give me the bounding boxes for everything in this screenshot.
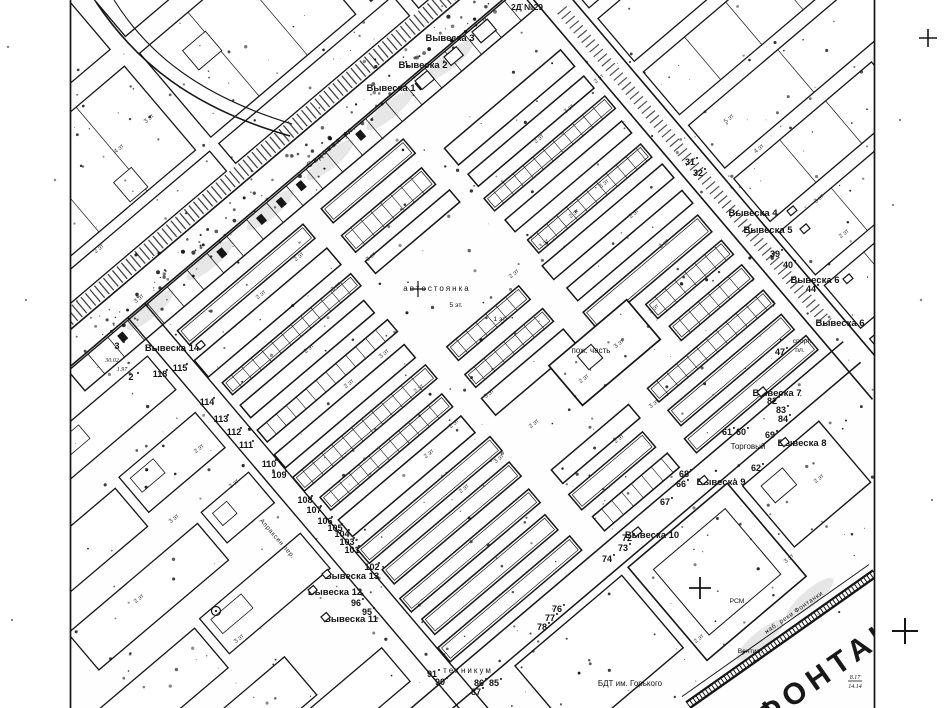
sign-label-3: Вывеска 3 — [425, 33, 474, 44]
area-label-parking: автостоянка — [403, 284, 470, 293]
cadastral-map-scan: Вывеска 1Вывеска 2Вывеска 3Вывеска 4Выве… — [0, 0, 944, 708]
benchmark-bottom: 14.14 — [848, 683, 862, 690]
survey-point-96: 96 — [351, 598, 361, 608]
survey-point-107: 107 — [306, 505, 321, 515]
survey-point-84: 84 — [778, 414, 788, 424]
survey-point-114: 114 — [200, 397, 215, 407]
survey-point-dot — [320, 505, 322, 507]
measure-3002: 30.02 — [104, 358, 119, 364]
survey-point-111: 111 — [239, 440, 253, 450]
survey-point-91: 91 — [427, 669, 437, 679]
survey-point-dot — [373, 607, 375, 609]
survey-point-dot — [671, 497, 673, 499]
survey-point-dot — [787, 405, 789, 407]
survey-point-dot — [358, 545, 360, 547]
survey-point-113: 113 — [214, 414, 229, 424]
survey-point-dot — [633, 533, 635, 535]
sign-label-1: Вывеска 1 — [366, 83, 416, 94]
survey-point-108: 108 — [297, 495, 312, 505]
area-label-sport-2: пл. — [795, 347, 805, 354]
survey-point-dot — [362, 598, 364, 600]
survey-point-dot — [485, 678, 487, 680]
survey-point-61: 61 — [722, 427, 732, 437]
street-label-torgovy: Торговый — [731, 442, 766, 451]
survey-point-44: 44 — [806, 284, 816, 294]
survey-point-dot — [500, 678, 502, 680]
survey-point-dot — [378, 562, 380, 564]
sheet-note: 2Д №29 — [511, 2, 543, 12]
survey-point-dot — [438, 669, 440, 671]
measure-197: 1.97 — [117, 367, 129, 373]
survey-point-dot — [556, 613, 558, 615]
survey-point-31: 31 — [685, 157, 695, 167]
area-label-rsm: РСМ — [730, 598, 745, 605]
survey-point-dot — [776, 430, 778, 432]
survey-point-dot — [252, 440, 254, 442]
sign-label-14: Вывеска 13 — [325, 571, 379, 582]
survey-point-dot — [213, 397, 215, 399]
survey-point-67: 67 — [660, 497, 670, 507]
survey-point-dot — [762, 463, 764, 465]
survey-point-87: 87 — [471, 687, 481, 697]
survey-point-dot — [781, 249, 783, 251]
survey-point-40: 40 — [783, 260, 793, 270]
survey-point-112: 112 — [227, 427, 242, 437]
sign-label-4: Вывеска 4 — [728, 208, 778, 219]
area-label-parking-floors: 5 эт. — [449, 302, 462, 309]
survey-point-3: 3 — [114, 341, 119, 351]
survey-point-dot — [704, 168, 706, 170]
benchmark-top: 8.17 — [850, 675, 862, 681]
survey-point-60: 60 — [736, 427, 746, 437]
survey-point-dot — [786, 347, 788, 349]
survey-point-110: 110 — [262, 459, 277, 469]
survey-point-dot — [733, 427, 735, 429]
survey-point-62: 62 — [751, 463, 761, 473]
survey-point-69: 69 — [765, 430, 775, 440]
survey-point-dot — [629, 543, 631, 545]
survey-point-85: 85 — [489, 678, 499, 688]
survey-point-47: 47 — [775, 347, 785, 357]
sign-label-15: Вывеска 14 — [145, 343, 200, 354]
sign-label-7: Вывеска 6 — [815, 318, 864, 329]
survey-point-dot — [696, 157, 698, 159]
sign-label-2: Вывеска 2 — [398, 60, 447, 71]
survey-point-dot — [353, 537, 355, 539]
survey-point-dot — [548, 622, 550, 624]
survey-point-dot — [690, 469, 692, 471]
survey-point-dot — [166, 369, 168, 371]
survey-point-dot — [817, 284, 819, 286]
survey-point-dot — [687, 479, 689, 481]
survey-point-dot — [613, 554, 615, 556]
survey-point-dot — [137, 372, 139, 374]
survey-point-dot — [747, 427, 749, 429]
survey-point-dot — [446, 677, 448, 679]
survey-point-dot — [482, 687, 484, 689]
survey-point-dot — [311, 495, 313, 497]
survey-point-118: 118 — [153, 369, 168, 379]
survey-point-115: 115 — [173, 363, 188, 373]
area-label-one-floor: 1 эт. — [493, 316, 506, 323]
area-label-fire-station: пож. часть — [572, 346, 611, 355]
area-label-technikum: техникум — [443, 666, 493, 675]
survey-point-dot — [789, 414, 791, 416]
survey-point-72: 72 — [622, 533, 632, 543]
survey-point-dot — [348, 529, 350, 531]
survey-point-102: 102 — [364, 562, 379, 572]
survey-point-dot — [123, 341, 125, 343]
sign-label-5: Вывеска 5 — [743, 225, 793, 236]
survey-point-74: 74 — [602, 554, 612, 564]
survey-point-95: 95 — [362, 607, 372, 617]
survey-point-dot — [778, 396, 780, 398]
survey-point-dot — [285, 470, 287, 472]
survey-point-dot — [341, 523, 343, 525]
survey-point-dot — [794, 260, 796, 262]
area-label-sport-1: спорт. — [793, 338, 812, 345]
survey-point-73: 73 — [618, 543, 628, 553]
survey-point-dot — [227, 414, 229, 416]
area-label-bdt: БДТ им. Горького — [598, 679, 663, 688]
survey-point-78: 78 — [537, 622, 547, 632]
survey-point-dot — [186, 363, 188, 365]
survey-point-32: 32 — [693, 168, 703, 178]
survey-point-2: 2 — [128, 372, 133, 382]
survey-point-dot — [563, 604, 565, 606]
survey-point-68: 68 — [679, 469, 689, 479]
survey-point-dot — [275, 459, 277, 461]
survey-point-39: 39 — [770, 249, 780, 259]
survey-point-66: 66 — [676, 479, 686, 489]
survey-point-dot — [331, 516, 333, 518]
survey-point-106: 106 — [317, 516, 332, 526]
survey-point-dot — [240, 427, 242, 429]
survey-point-109: 109 — [271, 470, 286, 480]
area-label-ventil: Вентил. — [738, 648, 763, 655]
